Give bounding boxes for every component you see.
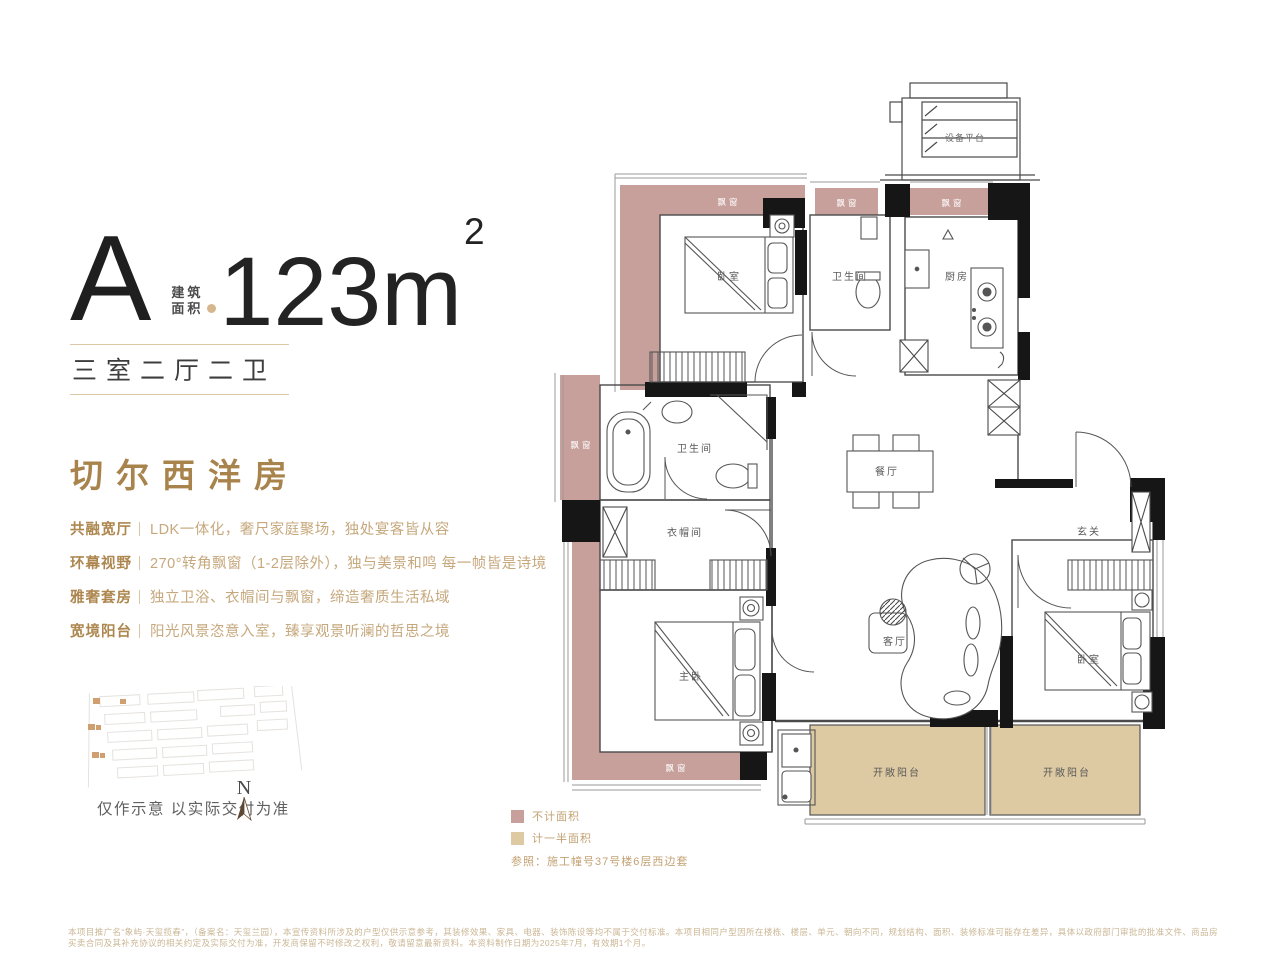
feature-label: 宽境阳台 — [70, 620, 132, 641]
reference-note: 参照：施工幢号37号楼6层西边套 — [511, 853, 688, 869]
feature-label: 共融宽厅 — [70, 518, 132, 539]
room-label-bath2: 卫生间 — [677, 442, 713, 455]
room-label-living: 客厅 — [883, 635, 907, 648]
feature-desc: LDK一体化，奢尺家庭聚场，独处宴客皆从容 — [150, 518, 450, 539]
room-label-balcony2: 开敞阳台 — [1043, 766, 1091, 779]
unit-header: A 建筑 面积 123m2 — [70, 226, 483, 331]
area-number: 123m — [219, 237, 462, 346]
gold-dot-icon — [207, 304, 216, 313]
feature-item: 雅奢套房 独立卫浴、衣帽间与飘窗，缔造奢质生活私域 — [70, 586, 510, 607]
room-label-foyer: 玄关 — [1077, 525, 1101, 538]
area-value: 123m2 — [219, 253, 482, 331]
room-label-bay1: 飘窗 — [717, 197, 740, 207]
legend-label: 不计面积 — [532, 808, 580, 824]
legend-item-no-area: 不计面积 — [511, 808, 688, 824]
room-label-bedroom2: 卧室 — [1077, 653, 1101, 666]
disclaimer-text: 本项目推广名“象屿·天玺揽春”，（备案名：天玺兰园），本宣传资料所涉及的户型仅供… — [68, 927, 1218, 950]
feature-divider — [139, 522, 140, 536]
room-label-kitchen: 厨房 — [945, 270, 969, 283]
furniture — [600, 215, 1153, 805]
site-highlight-marks — [88, 698, 126, 758]
room-label-equipment: 设备平台 — [945, 132, 985, 143]
area-label: 建筑 面积 — [171, 285, 203, 317]
unit-name: A — [70, 226, 149, 331]
bedroom1-wardrobe — [650, 352, 745, 382]
feature-label: 雅奢套房 — [70, 586, 132, 607]
area-label-line1: 建筑 — [171, 285, 203, 301]
laundry-fixtures — [778, 730, 815, 805]
legend-label: 计一半面积 — [532, 830, 592, 846]
project-title: 切尔西洋房 — [70, 449, 300, 497]
feature-divider — [139, 556, 140, 570]
site-plan-thumbnail — [72, 686, 312, 792]
site-note: 仅作示意 以实际交付为准 — [97, 797, 290, 819]
area-label-line2: 面积 — [171, 301, 203, 317]
feature-desc: 阳光风景恣意入室，臻享观景听澜的哲思之境 — [150, 620, 450, 641]
north-arrow-icon — [236, 797, 252, 821]
equipment-platform — [880, 83, 1040, 180]
feature-desc: 独立卫浴、衣帽间与飘窗，缔造奢质生活私域 — [150, 586, 450, 607]
room-label-master: 主卧 — [679, 670, 703, 683]
feature-item: 共融宽厅 LDK一体化，奢尺家庭聚场，独处宴客皆从容 — [70, 518, 510, 539]
area-superscript: 2 — [464, 211, 485, 252]
closet-wardrobe-right — [710, 560, 767, 590]
layout-type: 三室二厅二卫 — [70, 344, 289, 395]
closet-wardrobe-left — [600, 560, 655, 590]
room-label-bay2: 飘窗 — [836, 198, 859, 208]
room-label-bay4: 飘窗 — [570, 440, 593, 450]
feature-item: 环幕视野 270°转角飘窗（1-2层除外），独与美景和鸣 每一帧皆是诗境 — [70, 552, 510, 573]
floor-plan: 设备平台 飘窗 飘窗 飘窗 飘窗 飘窗 卧室 卫生间 厨房 卫生间 衣帽间 餐厅… — [505, 80, 1185, 830]
master-bed — [655, 597, 763, 745]
north-indicator: N — [233, 779, 255, 826]
room-label-bay5: 飘窗 — [665, 763, 688, 773]
feature-desc: 270°转角飘窗（1-2层除外），独与美景和鸣 每一帧皆是诗境 — [150, 552, 547, 573]
feature-divider — [139, 590, 140, 604]
bedroom1-bed — [685, 215, 794, 313]
brochure-page: { "header": { "unit": "A", "area_label_l… — [0, 0, 1280, 959]
room-label-balcony1: 开敞阳台 — [873, 766, 921, 779]
feature-item: 宽境阳台 阳光风景恣意入室，臻享观景听澜的哲思之境 — [70, 620, 510, 641]
legend-swatch-pink — [511, 810, 524, 823]
legend-swatch-tan — [511, 832, 524, 845]
feature-list: 共融宽厅 LDK一体化，奢尺家庭聚场，独处宴客皆从容 环幕视野 270°转角飘窗… — [70, 518, 510, 641]
feature-label: 环幕视野 — [70, 552, 132, 573]
room-label-dining: 餐厅 — [875, 465, 899, 478]
room-label-bath1: 卫生间 — [832, 270, 868, 283]
feature-divider — [139, 624, 140, 638]
north-label: N — [233, 779, 255, 797]
room-label-bedroom1: 卧室 — [717, 270, 741, 283]
room-label-closet: 衣帽间 — [667, 526, 703, 539]
room-label-bay3: 飘窗 — [941, 198, 964, 208]
bedroom2-furniture — [1045, 560, 1153, 712]
legend-item-half-area: 计一半面积 — [511, 830, 688, 846]
bath1-fixtures — [856, 217, 880, 308]
plan-legend: 不计面积 计一半面积 参照：施工幢号37号楼6层西边套 — [511, 808, 688, 869]
